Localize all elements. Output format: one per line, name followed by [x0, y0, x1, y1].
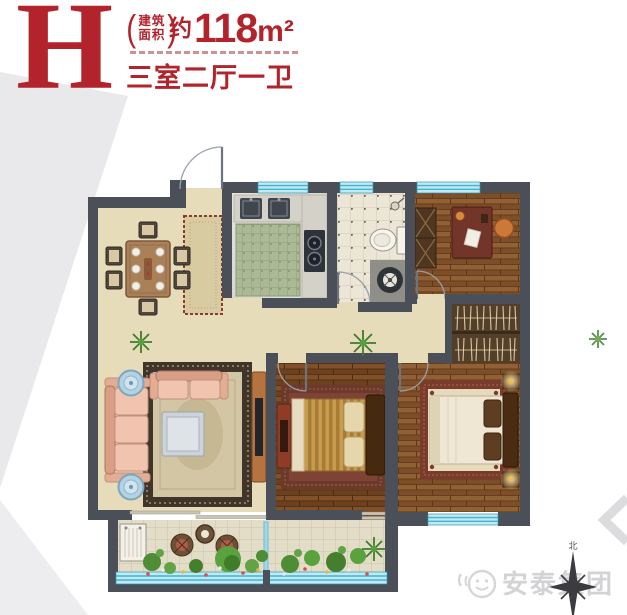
window-icon	[340, 182, 373, 193]
plant-icon	[589, 330, 607, 348]
tv-cabinet-icon	[277, 404, 291, 468]
compass-north-label: 北	[568, 541, 577, 551]
window-icon	[417, 182, 480, 193]
room-living	[105, 362, 266, 507]
floor-drain-icon	[377, 267, 403, 293]
desk-icon	[452, 207, 492, 258]
coffee-table-icon	[162, 412, 204, 456]
layout-text: 三室二厅一卫	[126, 56, 294, 95]
window-icon	[258, 182, 308, 193]
double-bed-icon	[292, 395, 385, 475]
plan-letter: H	[16, 0, 113, 110]
area-label-line1: 建筑	[138, 15, 165, 29]
double-bed-icon	[430, 393, 518, 467]
room-kitchen	[234, 195, 327, 298]
dashed-separator	[130, 51, 298, 54]
area-value: 约 118 m²	[169, 6, 294, 46]
window-icon	[428, 514, 498, 525]
stove-icon	[304, 230, 325, 272]
area-label-line2: 面积	[138, 29, 165, 43]
chevron-left-icon	[604, 498, 627, 542]
area-approx-prefix: 约	[169, 9, 194, 46]
plant-icon	[130, 331, 152, 353]
open-paren: (	[126, 15, 136, 43]
bookshelf-icon	[415, 208, 436, 268]
office-chair-icon	[495, 219, 514, 238]
area-number: 118	[194, 11, 257, 46]
tv-cabinet-icon	[252, 372, 266, 482]
balcony-table-icon	[196, 525, 214, 543]
floor-plan-page: 安泰集团	[0, 0, 627, 615]
entry-door-icon	[180, 147, 222, 189]
compass-icon: 北	[549, 541, 597, 615]
area-unit: m²	[257, 18, 294, 46]
washing-machine-icon	[120, 524, 146, 561]
